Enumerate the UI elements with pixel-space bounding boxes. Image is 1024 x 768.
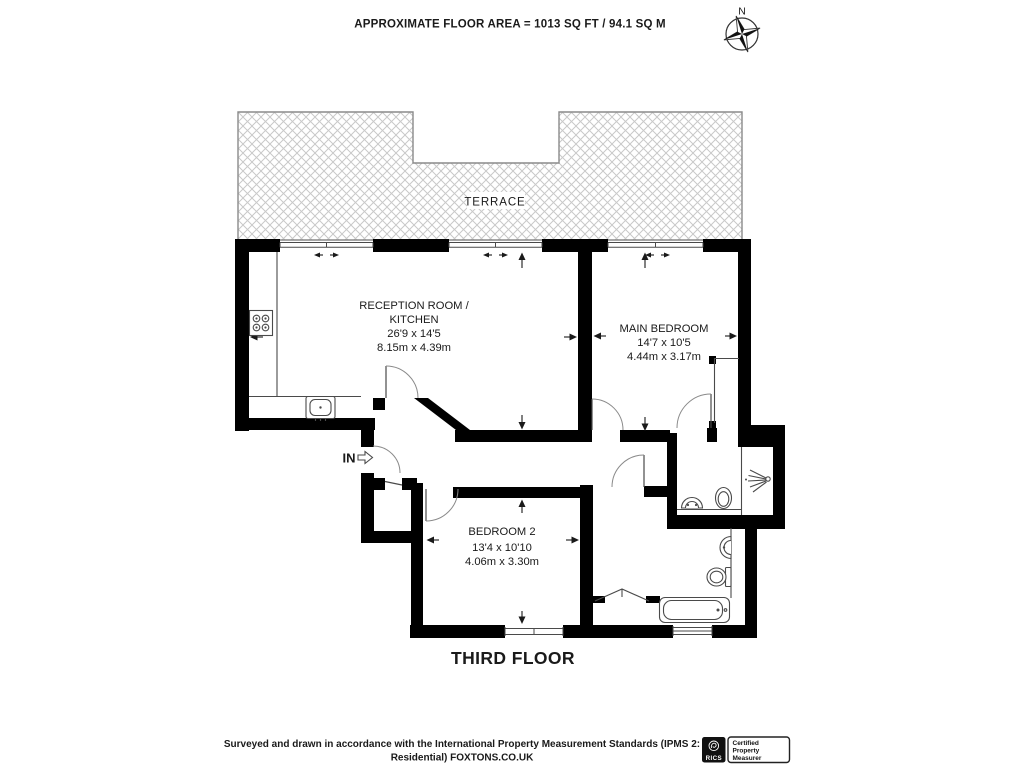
footer-line1: Surveyed and drawn in accordance with th… xyxy=(224,739,700,750)
hall-closet-door xyxy=(385,482,402,486)
ensuite-fixtures xyxy=(677,447,770,515)
bathroom-fixtures xyxy=(660,528,732,623)
shower-icon xyxy=(745,470,770,492)
terrace-windows xyxy=(280,243,703,248)
main-bedroom-size-metric: 4.44m x 3.17m xyxy=(627,351,701,363)
floorplan-drawing: APPROXIMATE FLOOR AREA = 1013 SQ FT / 94… xyxy=(0,0,1024,768)
main-bedroom-door xyxy=(592,399,623,430)
entry-label: IN xyxy=(343,451,356,466)
terrace-label: TERRACE xyxy=(464,197,525,209)
bathtub-icon xyxy=(660,598,730,623)
terrace-hatch xyxy=(238,112,742,240)
cert-line3: Measurer xyxy=(733,755,762,762)
cert-line2: Property xyxy=(733,748,760,755)
wardrobe-recess xyxy=(714,358,739,423)
reception-door xyxy=(386,366,418,398)
hob-icon xyxy=(250,311,273,336)
cert-line1: Certified xyxy=(733,740,759,747)
floor-title: THIRD FLOOR xyxy=(451,648,575,668)
main-bedroom-name: MAIN BEDROOM xyxy=(620,323,709,335)
ensuite-door xyxy=(677,394,711,428)
bathroom-door xyxy=(612,455,644,487)
ensuite-basin-icon xyxy=(682,498,703,508)
window-slide-arrows xyxy=(314,253,670,258)
entry-marker: IN xyxy=(343,451,373,466)
compass-north-label: N xyxy=(738,6,746,18)
walls xyxy=(235,239,785,638)
footer-disclaimer: Surveyed and drawn in accordance with th… xyxy=(224,739,700,764)
reception-name-line1: RECEPTION ROOM / xyxy=(359,300,469,312)
bedroom2-size-metric: 4.06m x 3.30m xyxy=(465,556,539,568)
terrace-area: TERRACE xyxy=(238,112,742,240)
bathroom-toilet-icon xyxy=(707,568,731,587)
kitchen-fixtures xyxy=(249,252,361,421)
rics-org-label: RICS xyxy=(706,755,722,762)
compass-rose: N xyxy=(718,6,766,58)
bedroom2-name: BEDROOM 2 xyxy=(468,526,535,538)
main-bedroom-size-imperial: 14'7 x 10'5 xyxy=(637,337,690,349)
reception-size-metric: 8.15m x 4.39m xyxy=(377,342,451,354)
entry-arrow-icon xyxy=(358,452,373,464)
bedroom2-size-imperial: 13'4 x 10'10 xyxy=(472,542,532,554)
entry-door xyxy=(373,446,400,473)
sink-icon xyxy=(306,397,335,422)
floorplan-page: APPROXIMATE FLOOR AREA = 1013 SQ FT / 94… xyxy=(0,0,1024,768)
rics-badge: RICS Certified Property Measurer xyxy=(702,737,790,763)
bathroom-basin-icon xyxy=(720,537,731,559)
ensuite-toilet-icon xyxy=(716,488,732,509)
footer-line2: Residential) FOXTONS.CO.UK xyxy=(391,753,534,764)
reception-size-imperial: 26'9 x 14'5 xyxy=(387,328,440,340)
page-title: APPROXIMATE FLOOR AREA = 1013 SQ FT / 94… xyxy=(354,19,666,31)
doors xyxy=(373,358,739,601)
reception-name-line2: KITCHEN xyxy=(389,314,438,326)
